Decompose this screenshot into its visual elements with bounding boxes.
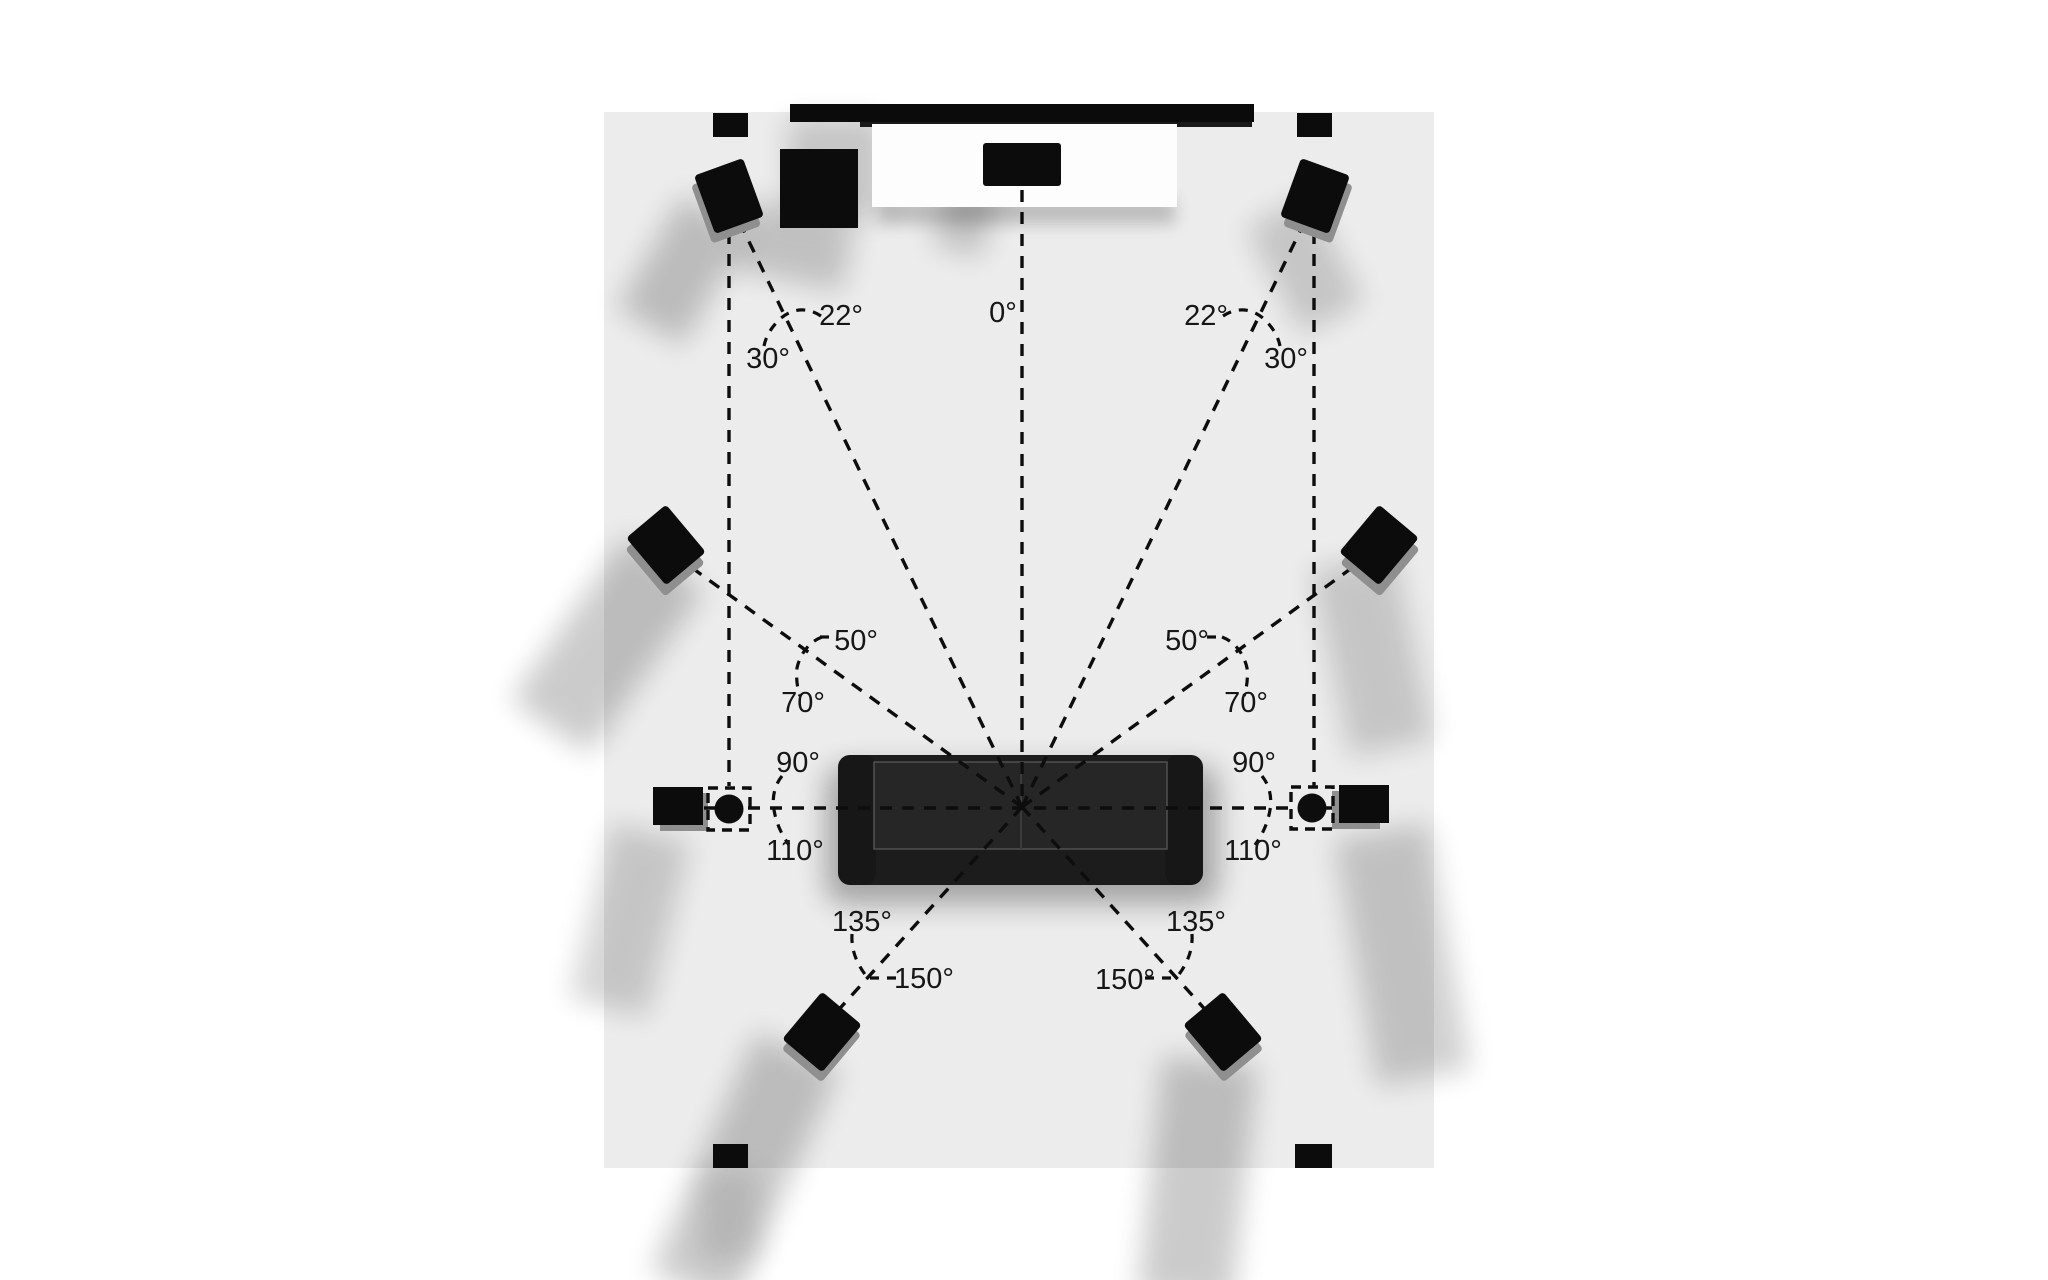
label-right-front-max: 30° (1264, 343, 1308, 375)
label-left-front-max: 30° (746, 343, 790, 375)
corner-marker-bottom-left (713, 1144, 748, 1168)
label-right-side-max: 110° (1224, 835, 1282, 867)
side-left-speaker (653, 787, 703, 825)
label-right-wide-min: 50° (1165, 625, 1209, 657)
diagram-svg: 0° 22° 30° 22° 30° 50° 70° 50° 70° 90° 1… (0, 0, 2048, 1280)
speaker-placement-diagram: 0° 22° 30° 22° 30° 50° 70° 50° 70° 90° 1… (0, 0, 2048, 1280)
label-right-front-min: 22° (1184, 300, 1228, 332)
sofa-arm-left (838, 755, 876, 885)
sofa-arm-right (1165, 755, 1203, 885)
corner-marker-top-right (1297, 113, 1332, 137)
tv-screen (790, 104, 1254, 122)
label-right-rear-min: 135° (1166, 906, 1226, 938)
center-speaker (983, 143, 1061, 186)
label-left-wide-max: 70° (781, 687, 825, 719)
subwoofer (780, 149, 858, 228)
label-center-0: 0° (989, 297, 1017, 329)
label-left-front-min: 22° (819, 300, 863, 332)
label-right-rear-max: 150° (1095, 964, 1155, 996)
label-left-side-max: 110° (766, 835, 824, 867)
label-left-rear-min: 135° (832, 906, 892, 938)
sofa (838, 755, 1203, 885)
label-right-wide-max: 70° (1224, 687, 1268, 719)
corner-marker-top-left (713, 113, 748, 137)
label-left-rear-max: 150° (894, 963, 954, 995)
side-left-position-dot (715, 795, 744, 824)
label-left-wide-min: 50° (834, 625, 878, 657)
side-right-speaker (1339, 785, 1389, 823)
label-left-side-min: 90° (776, 747, 820, 779)
side-right-position-dot (1298, 794, 1327, 823)
corner-bl-shadow (700, 1170, 760, 1260)
label-right-side-min: 90° (1232, 747, 1276, 779)
corner-marker-bottom-right (1295, 1144, 1332, 1168)
